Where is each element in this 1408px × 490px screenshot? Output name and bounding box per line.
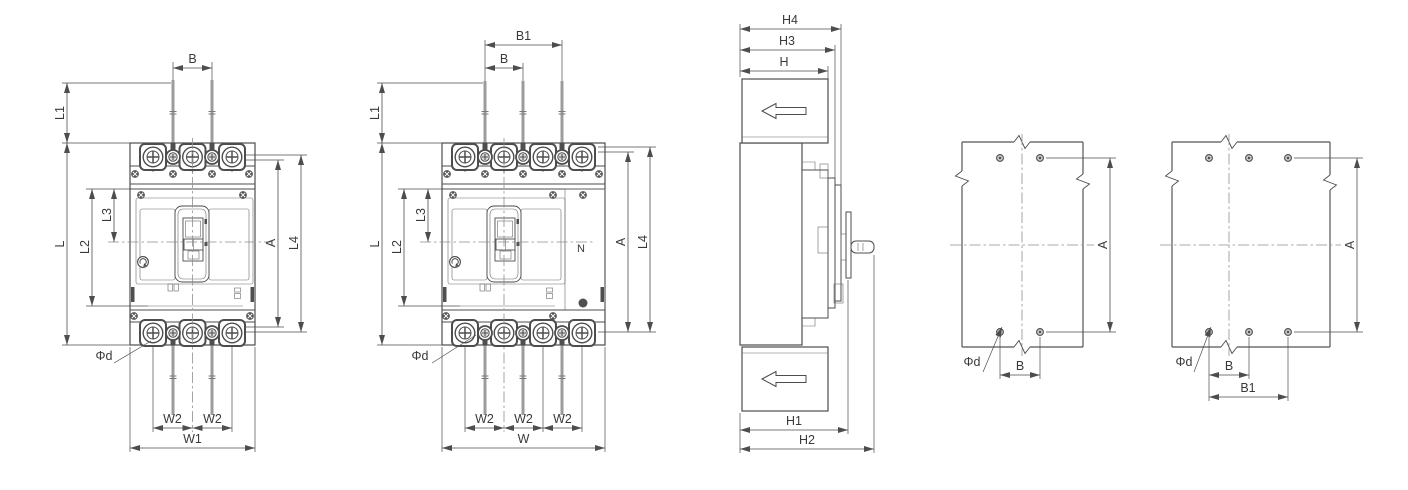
dim-A-3p: A	[264, 238, 278, 247]
dim-H1: H1	[786, 414, 802, 428]
break-mark	[1324, 175, 1337, 190]
drawing-svg: B L1 L L3 L2 A L4 Φd W2 W2 W1	[0, 0, 1408, 490]
front-view-3-pole: B L1 L L3 L2 A L4 Φd W2 W2 W1	[53, 52, 307, 452]
side-body	[740, 143, 802, 345]
dim-L-4p: L	[368, 240, 382, 247]
dim-L2-4p: L2	[390, 240, 404, 254]
dim-W2b-3p: W2	[203, 412, 222, 426]
dim-B-drill3p: B	[1016, 359, 1024, 373]
dim-phid-4p: Φd	[412, 349, 429, 363]
dim-H2: H2	[799, 433, 815, 447]
break-mark	[1077, 174, 1090, 189]
break-mark	[1166, 171, 1179, 186]
dim-W2a-4p: W2	[475, 412, 494, 426]
dim-L3-4p: L3	[414, 208, 428, 222]
dim-B-4p: B	[500, 52, 508, 66]
dim-L-3p: L	[53, 240, 67, 247]
dim-W2b-4p: W2	[514, 412, 533, 426]
dim-A-drill3p: A	[1096, 240, 1110, 249]
dim-L3-3p: L3	[100, 208, 114, 222]
dim-L4-4p: L4	[636, 235, 650, 249]
dim-B1-drill4p: B1	[1240, 381, 1255, 395]
neutral-pole-button	[579, 299, 588, 308]
dim-phid-3p: Φd	[96, 349, 113, 363]
dim-B-drill4p: B	[1225, 359, 1233, 373]
dim-B-3p: B	[188, 52, 196, 66]
front-view-4-pole: N B1 B L1 L L3 L2 A L4	[368, 29, 656, 452]
dim-L1-3p: L1	[53, 106, 67, 120]
dim-A-4p: A	[614, 237, 628, 246]
mounting-drilling-plan-3-pole: A Φd B	[950, 134, 1116, 379]
mounting-plate-outline	[1172, 142, 1330, 347]
dim-H4: H4	[782, 13, 798, 27]
dim-B1-4p: B1	[516, 29, 531, 43]
dim-W-4p: W	[518, 432, 530, 446]
mounting-drilling-plan-4-pole: A Φd B B1	[1160, 134, 1363, 401]
dim-H: H	[779, 55, 788, 69]
dim-L1-4p: L1	[368, 106, 382, 120]
dim-W2a-3p: W2	[163, 412, 182, 426]
dimension-drawing-figure: B L1 L L3 L2 A L4 Φd W2 W2 W1	[0, 0, 1408, 490]
dim-W1-3p: W1	[183, 432, 202, 446]
dim-L4-3p: L4	[287, 236, 301, 250]
dim-L2-3p: L2	[78, 240, 92, 254]
dim-W2c-4p: W2	[553, 412, 572, 426]
dim-H3: H3	[779, 34, 795, 48]
mounting-plate-outline	[962, 142, 1083, 347]
break-mark	[956, 171, 969, 186]
side-handle	[851, 241, 874, 253]
dim-phid-drill4p: Φd	[1176, 355, 1193, 369]
mechanism-plate	[846, 212, 851, 278]
front-escutcheon	[802, 170, 828, 318]
dim-A-drill4p: A	[1343, 240, 1357, 249]
side-view: H4 H3 H H1 H2	[740, 13, 874, 453]
label-N-4p: N	[577, 243, 585, 255]
dim-phid-drill3p: Φd	[964, 355, 981, 369]
